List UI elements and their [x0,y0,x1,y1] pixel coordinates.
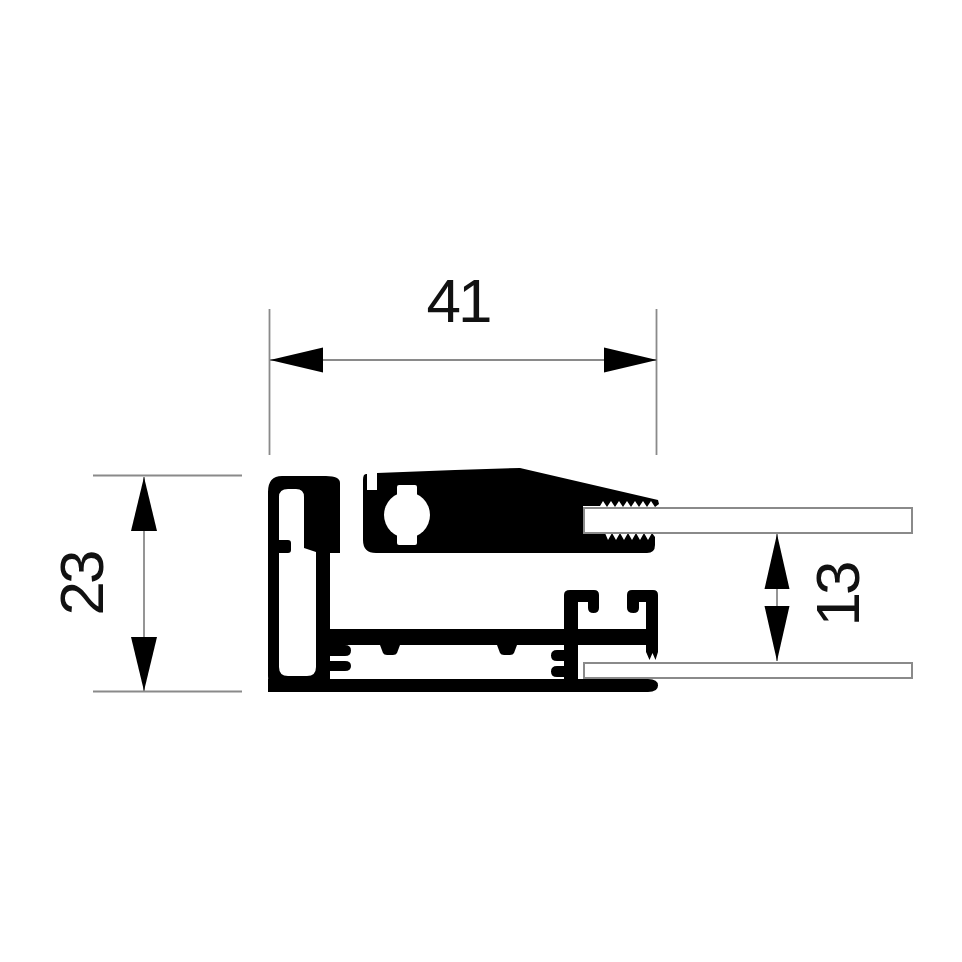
dim-height-arrow-bottom [131,637,157,691]
panel-top [584,508,912,533]
dim-height-label: 23 [51,553,113,616]
profile-cross-section-drawing [0,0,962,962]
profile-right-hook [627,590,658,660]
dim-gap-arrow-down [765,606,790,661]
screw-hole-top-flat [397,485,417,497]
dim-width-label: 41 [427,270,490,332]
profile-left-tube [268,476,340,692]
dim-height-arrow-top [131,477,157,531]
dim-width-arrow-right [604,348,657,373]
profile-left-snap-teeth [330,645,351,671]
extrusion-profile [268,468,659,692]
dim-width-arrow-left [270,348,323,373]
screw-hole-bottom-flat [397,533,417,545]
panel-bottom [584,663,912,678]
technical-drawing-canvas: 41 23 13 [0,0,962,962]
dim-gap-label: 13 [807,564,869,627]
profile-bottom-wall [268,679,658,692]
dim-gap-arrow-up [765,534,790,589]
screw-hole [384,492,430,538]
profile-mid-bar [330,629,658,655]
